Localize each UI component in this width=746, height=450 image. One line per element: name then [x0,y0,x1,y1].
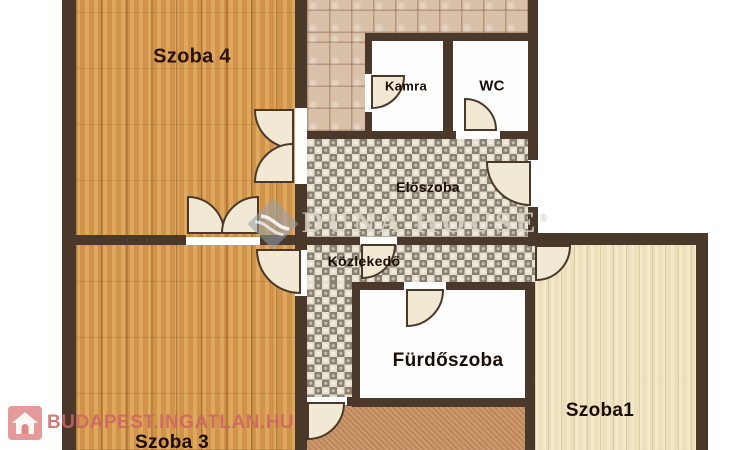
eloszoba-label: Előszoba [396,179,460,195]
door-furdoszoba [407,290,443,326]
house-icon [8,406,42,440]
door-bottom-room [308,403,344,439]
door-szoba3 [257,250,300,293]
szoba4-label: Szoba 4 [153,46,231,69]
furdoszoba-label: Fürdőszoba [393,350,504,372]
floor-plan: Szoba 4 Kamra WC Előszoba Közlekedő Fürd… [0,0,746,450]
szoba1-label: Szoba1 [566,400,634,422]
door-wc [465,99,496,130]
door-szoba4-double-bottom [255,144,293,182]
duna-house-watermark-text: DUNA HOUSE® [302,206,502,240]
registered-mark: ® [540,213,547,224]
kozlekedo-label: Közlekedő [328,253,401,269]
wc-label: WC [479,78,505,95]
door-szoba3-szoba4-left-leaf [188,197,224,233]
portal-watermark: BUDAPEST.INGATLAN.HU [8,406,294,440]
portal-watermark-text: BUDAPEST.INGATLAN.HU [47,412,294,434]
door-szoba1 [536,246,570,280]
duna-house-diamond-icon [243,194,303,254]
door-szoba4-double-top [255,110,293,148]
kamra-label: Kamra [385,79,427,94]
door-entrance [487,162,530,205]
